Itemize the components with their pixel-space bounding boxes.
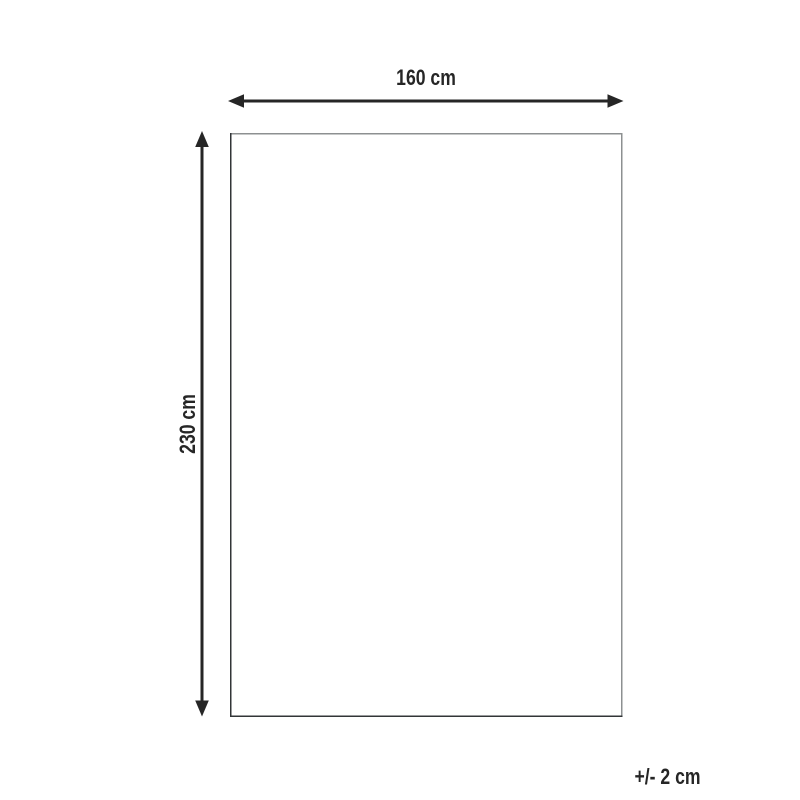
dimension-diagram: 160 cm 230 cm +/- 2 cm — [0, 0, 800, 800]
tolerance-label: +/- 2 cm — [635, 764, 701, 790]
height-dimension-label: 230 cm — [175, 344, 201, 504]
height-arrow-head-top-icon — [195, 131, 209, 147]
product-outline-left-bottom — [231, 133, 623, 716]
width-arrow-head-left-icon — [228, 94, 244, 108]
width-dimension-label: 160 cm — [346, 65, 506, 91]
width-arrow-head-right-icon — [608, 94, 624, 108]
product-outline-top-right — [230, 134, 622, 717]
height-arrow-head-bottom-icon — [195, 701, 209, 717]
diagram-canvas — [0, 0, 800, 800]
